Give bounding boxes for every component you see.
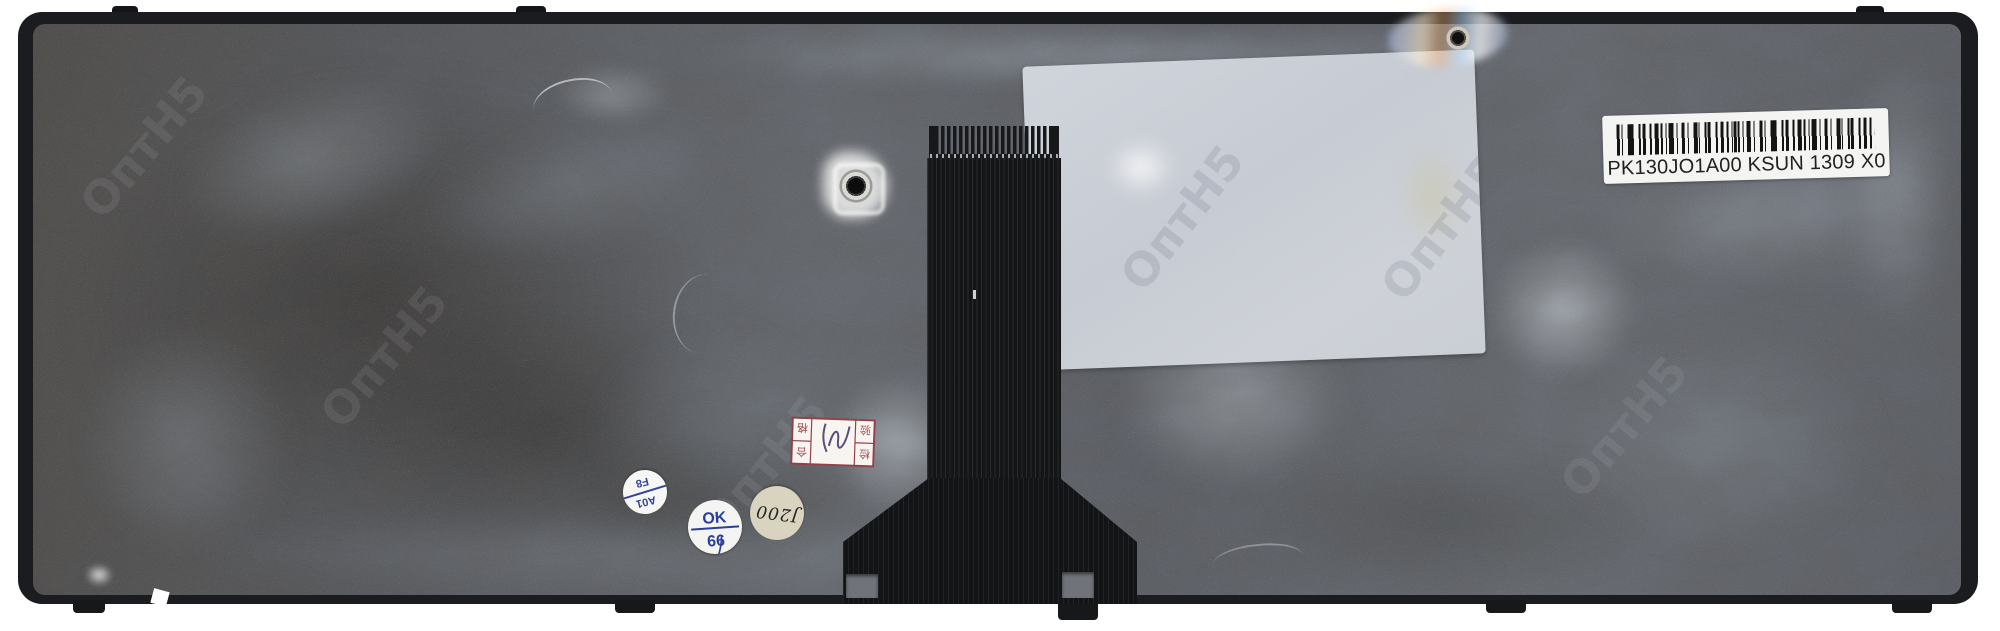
screw-hole-center xyxy=(838,168,874,204)
sticker-text: F8 xyxy=(634,475,649,490)
cable-base-cutout xyxy=(1062,572,1094,598)
ribbon-cable-body xyxy=(927,158,1061,480)
keyboard-back-photo: ОптН5 ОптН5 ОптН5 ОптН5 ОптН5 ОптН5 检 xyxy=(0,0,2000,631)
sticker-text: J200 xyxy=(754,500,799,525)
sticker-text: 66 xyxy=(707,532,726,550)
barcode-label: PK130JO1A00 KSUN 1309 X0 xyxy=(1602,108,1890,184)
cable-speck xyxy=(973,290,976,299)
frame-bottom-tab xyxy=(615,600,655,613)
cable-base-cutout xyxy=(846,574,878,598)
qc-stamp: 检 验 合 格 xyxy=(790,417,876,468)
barcode-bars xyxy=(1616,117,1875,155)
frame-bottom-tab xyxy=(1486,600,1526,613)
film-texture-noise xyxy=(1022,49,1485,370)
frame-bottom-tab xyxy=(73,600,105,613)
frame-bottom-tab xyxy=(1892,600,1932,613)
ribbon-cable-contact-fingers xyxy=(929,126,1059,154)
sticker-text: OK xyxy=(702,509,728,528)
qc-stamp-graphic: 检 验 合 格 xyxy=(790,417,876,468)
protective-film-sticker: ОптН5 ОптН5 xyxy=(1022,49,1485,370)
sticker-text: A01 xyxy=(635,493,657,510)
screw-hole-top xyxy=(1443,23,1473,53)
round-sticker-ok-66: OK 66 xyxy=(686,498,744,556)
round-sticker-graphic: OK 66 xyxy=(686,498,744,556)
frame-gap-notch xyxy=(150,588,169,607)
